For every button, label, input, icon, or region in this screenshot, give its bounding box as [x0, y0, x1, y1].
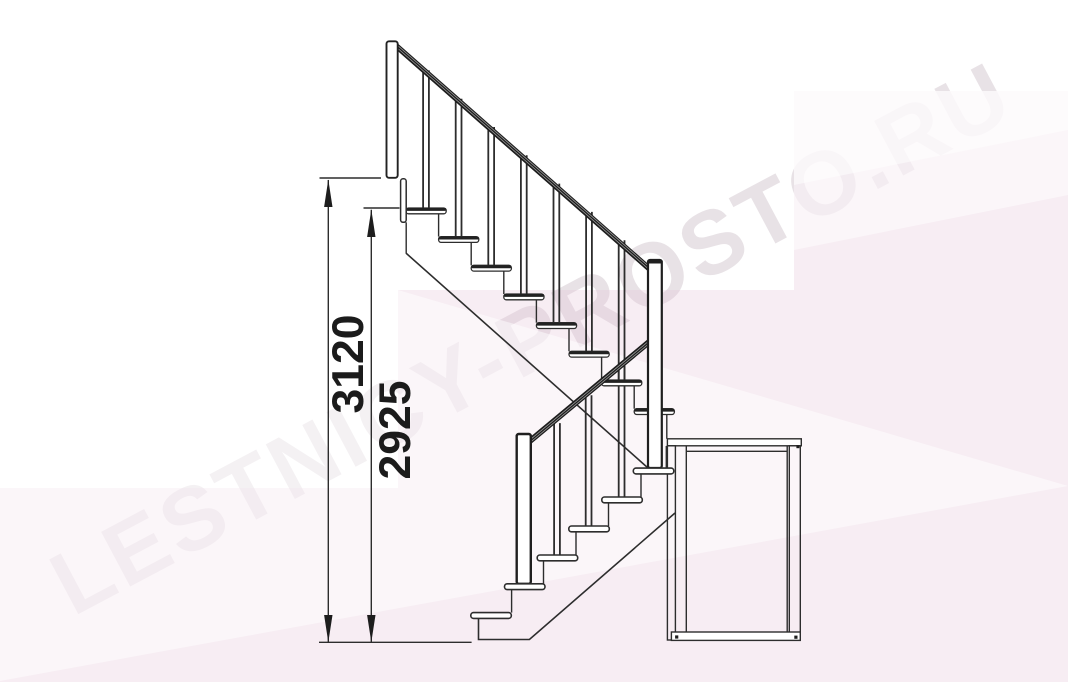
- svg-text:3120: 3120: [324, 315, 373, 414]
- svg-text:2925: 2925: [371, 381, 420, 480]
